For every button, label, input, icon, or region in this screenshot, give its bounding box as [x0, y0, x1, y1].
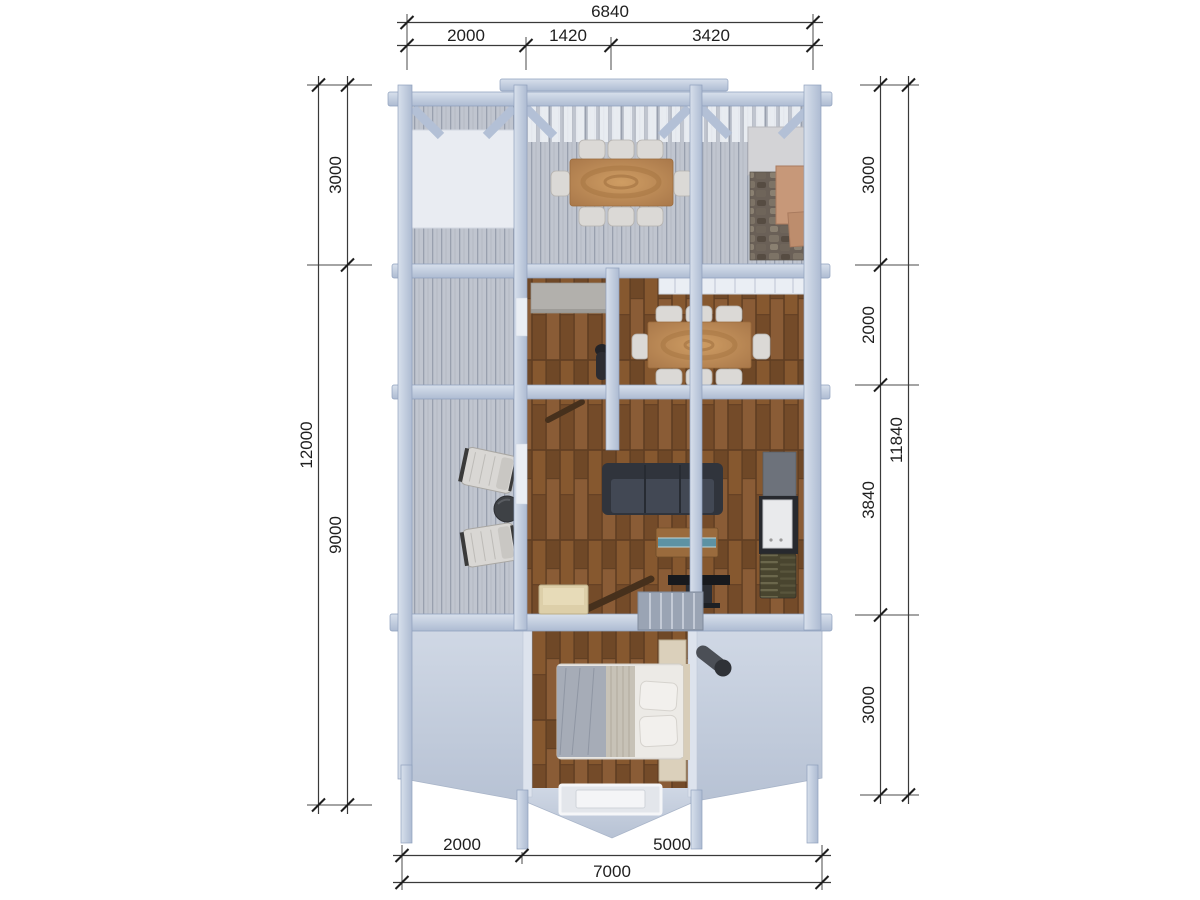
- mid-right-post: [690, 85, 702, 630]
- dim-left-seg-1: 3000: [326, 156, 345, 194]
- dim-top-seg-3: 3420: [692, 26, 730, 45]
- bed-runner: [606, 666, 635, 757]
- dimension-right: 3000 2000 3840 3000 11840: [855, 76, 919, 804]
- mid-left-post: [514, 85, 527, 630]
- blanket: [557, 666, 606, 757]
- floor-plan-rendering: 6840 2000 1420 3420 2000 5000 7000 12000…: [0, 0, 1200, 900]
- dimension-top: 6840 2000 1420 3420: [397, 2, 823, 70]
- dimension-left: 12000 3000 9000: [297, 76, 372, 814]
- dim-right-total: 11840: [887, 417, 906, 463]
- kitchen-partition-wall: [606, 268, 619, 450]
- front-beam: [388, 92, 832, 106]
- post-foot: [517, 790, 528, 849]
- roof-left: [399, 629, 524, 801]
- bedroom-wall-left: [523, 629, 532, 797]
- firewood-storage: [760, 554, 796, 598]
- dim-left-total: 12000: [297, 421, 316, 468]
- skylight: [560, 785, 661, 814]
- nightstand-bottom: [659, 756, 686, 781]
- dim-bottom-seg-1: 2000: [443, 835, 481, 854]
- dimension-bottom: 2000 5000 7000: [393, 835, 831, 890]
- floor-plan-screenshot: 6840 2000 1420 3420 2000 5000 7000 12000…: [0, 0, 1200, 900]
- fireplace: [759, 452, 798, 598]
- side-deck: [399, 268, 516, 618]
- left-wall-post: [398, 85, 412, 779]
- bench: [539, 585, 588, 614]
- dim-right-seg-3: 3840: [859, 481, 878, 519]
- pillow: [639, 681, 678, 712]
- post-foot: [691, 790, 702, 849]
- dim-top-total: 6840: [591, 2, 629, 21]
- dim-top-seg-2: 1420: [549, 26, 587, 45]
- dining-window-band: [659, 277, 805, 294]
- dim-left-seg-2: 9000: [326, 516, 345, 554]
- kitchen-counter: [531, 283, 607, 313]
- post-foot: [807, 765, 818, 843]
- dim-right-seg-4: 3000: [859, 686, 878, 724]
- balcony-door: [516, 298, 527, 336]
- terrace-privacy-wall: [411, 130, 516, 228]
- coffee-table: [656, 528, 718, 557]
- nightstand-top: [659, 640, 686, 666]
- stove-unit: [763, 500, 792, 548]
- eave-beam: [390, 614, 832, 631]
- dim-bottom-seg-2: 5000: [653, 835, 691, 854]
- pillow: [639, 715, 678, 747]
- dim-right-seg-2: 2000: [859, 306, 878, 344]
- balcony-glass-door: [516, 444, 527, 504]
- dim-bottom-total: 7000: [593, 862, 631, 881]
- dim-top-seg-1: 2000: [447, 26, 485, 45]
- dim-right-seg-1: 3000: [859, 156, 878, 194]
- right-wall-post: [804, 85, 821, 630]
- post-foot: [401, 765, 412, 843]
- sofa: [602, 463, 723, 515]
